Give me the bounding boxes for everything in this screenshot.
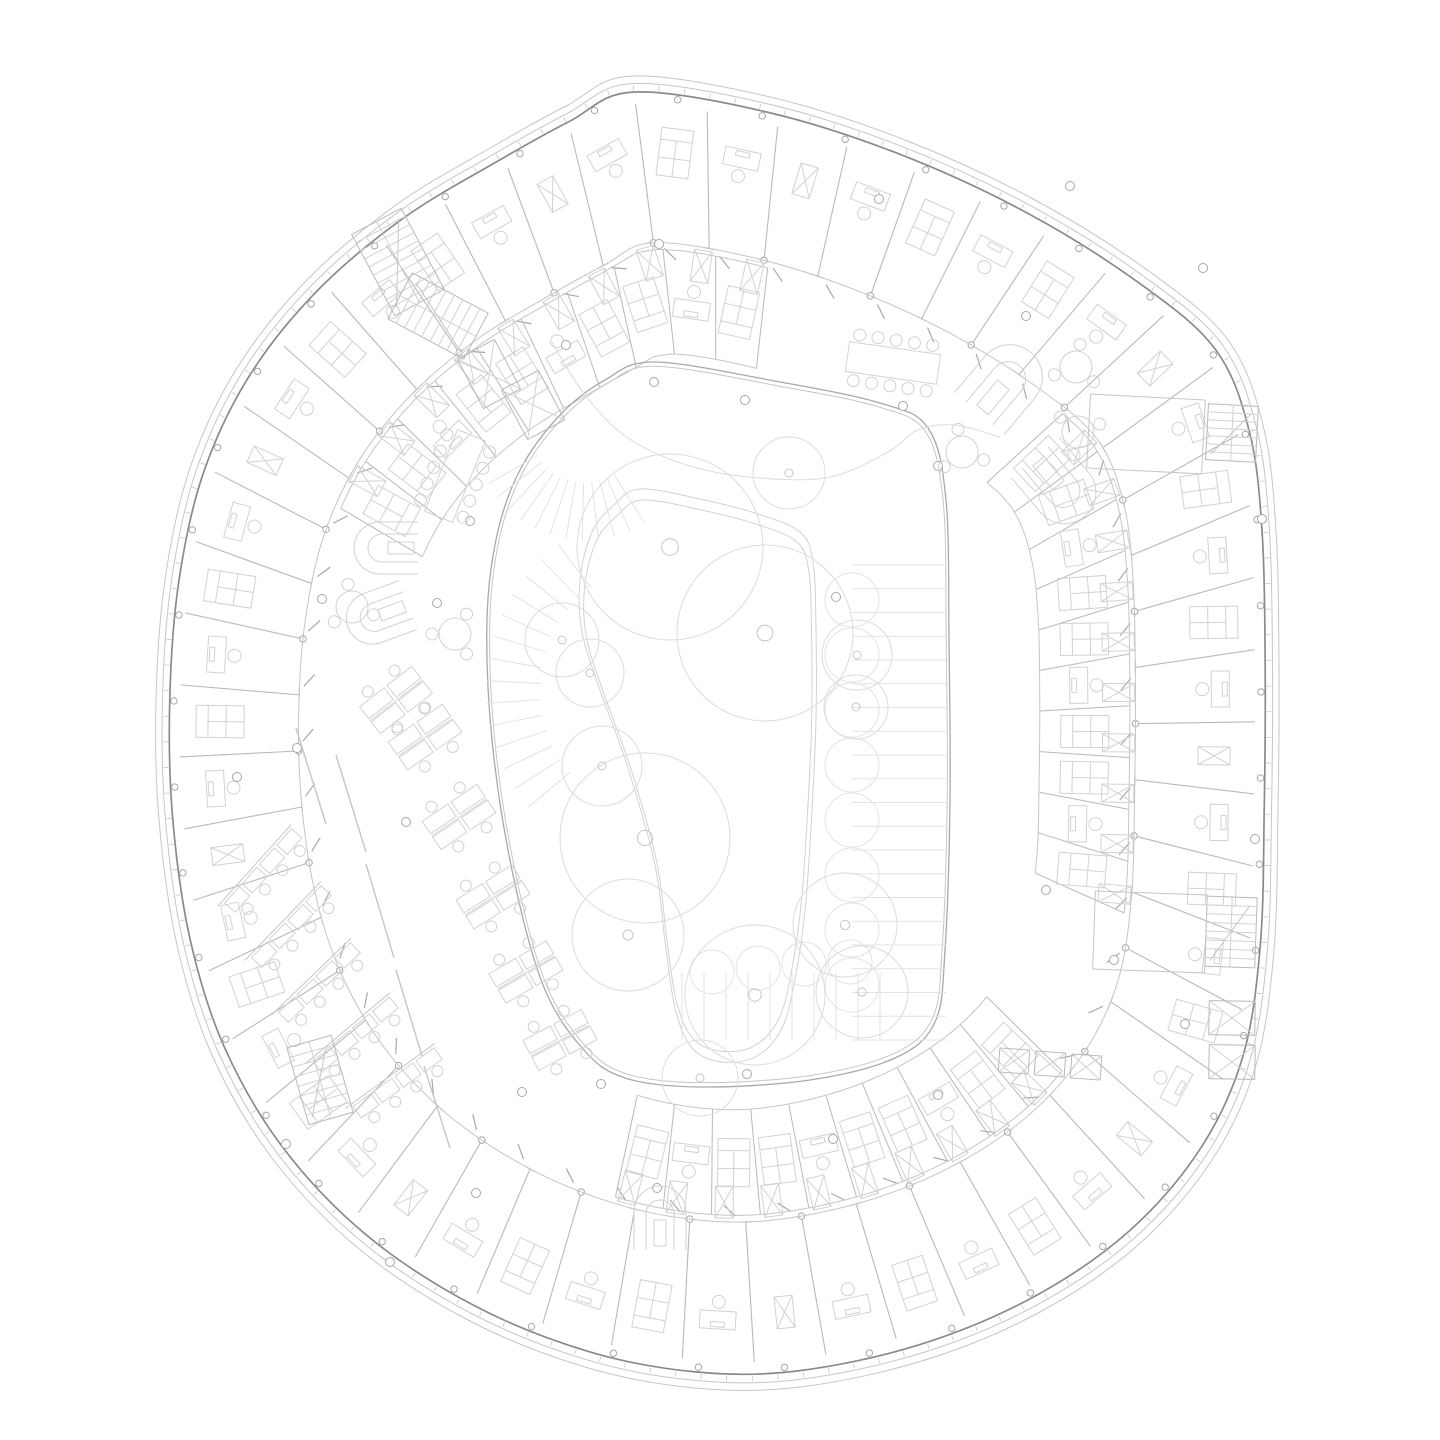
room-furniture <box>1063 1161 1112 1210</box>
room-furniture <box>338 1128 387 1177</box>
mullion-tick <box>828 1368 829 1373</box>
band-partition <box>1040 752 1130 758</box>
desk <box>832 1294 871 1319</box>
privacy-screen <box>366 864 394 958</box>
bed-line <box>849 1140 879 1150</box>
u-sofa-inner <box>966 355 1033 425</box>
mullion-tick <box>434 1287 437 1291</box>
mullion-tick <box>1147 1217 1150 1221</box>
tree-trunk <box>662 539 679 556</box>
mullion-tick <box>903 1351 904 1356</box>
door-tick <box>317 567 330 577</box>
mullion-tick <box>192 487 197 488</box>
chair <box>840 1281 855 1296</box>
band-partition <box>1036 550 1125 589</box>
privacy-screen <box>336 755 366 852</box>
band-furniture <box>388 444 446 499</box>
deck-stripe <box>494 636 546 652</box>
chair <box>492 229 510 247</box>
chair <box>976 258 994 276</box>
chair <box>409 1079 424 1094</box>
courtyard-edge <box>487 362 950 1087</box>
mullion-tick <box>200 463 205 465</box>
mullion-tick <box>252 1110 256 1113</box>
desk <box>1181 403 1210 443</box>
mullion-tick <box>281 1152 285 1155</box>
facade-line <box>162 83 1273 1383</box>
chair <box>360 684 375 699</box>
chair <box>458 645 475 662</box>
mullion-tick <box>834 124 836 129</box>
partition-wall <box>184 807 302 829</box>
band-inner-wall <box>987 483 1040 874</box>
column-dot <box>1022 312 1031 321</box>
bench-desk <box>374 1078 400 1102</box>
mullion-tick <box>1172 302 1175 306</box>
chair <box>240 901 256 917</box>
band-wardrobe <box>588 268 619 305</box>
mullion-tick <box>176 563 181 564</box>
chair <box>815 1155 831 1171</box>
partition-wall <box>358 1106 437 1213</box>
band-inner-wall <box>422 354 756 557</box>
mullion-tick <box>297 1172 301 1175</box>
monitor <box>684 1146 699 1153</box>
band-partition <box>826 1095 857 1197</box>
deck-stripe <box>508 468 547 510</box>
mullion-tick <box>624 1363 625 1368</box>
chair <box>687 285 702 300</box>
room-furniture <box>952 1234 999 1280</box>
mullion-tick <box>176 895 181 896</box>
room-furniture <box>699 1294 737 1330</box>
elevator <box>501 370 564 439</box>
mullion-tick <box>198 994 203 995</box>
column-dot <box>1258 515 1267 524</box>
mullion-tick <box>1088 243 1091 247</box>
mullion-tick <box>185 945 190 946</box>
chair <box>275 862 291 878</box>
desk-cluster <box>483 930 570 1014</box>
privacy-screen <box>296 728 326 824</box>
room-furniture <box>829 1279 871 1319</box>
elevator <box>1209 1045 1256 1080</box>
chair <box>889 333 903 347</box>
desk <box>433 420 471 458</box>
walkway-path <box>579 489 816 1063</box>
chair <box>432 443 448 459</box>
room-furniture <box>289 1075 347 1129</box>
mullion-tick <box>999 1316 1001 1321</box>
bed-line <box>913 226 942 239</box>
room-furniture <box>247 446 284 476</box>
column-dot <box>829 1135 838 1144</box>
courtyard-walkway <box>579 489 816 1063</box>
desk-cluster <box>415 774 503 860</box>
room-furniture <box>1009 1198 1062 1256</box>
tree-trunk <box>840 920 849 929</box>
deck-scallop <box>825 848 879 902</box>
band-partition <box>615 1095 637 1197</box>
room-furniture <box>1146 1059 1193 1107</box>
monitor <box>735 150 750 158</box>
monitor <box>1221 816 1226 830</box>
facade-column <box>695 1364 701 1370</box>
chair <box>312 994 328 1010</box>
tree-canopy <box>822 620 892 690</box>
bench-row <box>346 1044 452 1133</box>
chair <box>246 519 262 535</box>
deck-bands <box>486 456 946 1041</box>
band-furniture <box>758 1134 796 1186</box>
facade-column <box>759 113 765 119</box>
chair <box>228 649 242 663</box>
desk <box>850 182 890 212</box>
tree-trunk <box>623 930 633 940</box>
facade-column <box>866 1350 872 1356</box>
mullion-tick <box>186 512 191 513</box>
band-furniture <box>1057 852 1107 888</box>
facade-column <box>1257 775 1263 781</box>
bed-line <box>1066 485 1077 515</box>
chair <box>1089 817 1102 830</box>
band-partition <box>756 268 767 369</box>
table-top <box>845 342 940 385</box>
mullion-tick <box>210 439 215 441</box>
tree-trunk <box>757 625 773 641</box>
band-furniture <box>718 1138 750 1186</box>
deck-stripe <box>521 473 554 520</box>
monitor <box>1175 1081 1186 1096</box>
band-wardrobe <box>1061 430 1097 465</box>
room-furniture <box>203 569 255 608</box>
partition-wall <box>1135 780 1254 794</box>
door-tick <box>518 1144 524 1159</box>
bed-line <box>920 210 949 223</box>
mullion-tick <box>976 1326 978 1331</box>
facade-column <box>528 1323 534 1329</box>
room-furniture <box>1187 872 1236 906</box>
meeting-table <box>843 328 942 398</box>
chair <box>462 493 478 509</box>
bench-desk <box>372 997 398 1022</box>
bed-line <box>257 967 267 997</box>
round-table <box>424 597 495 668</box>
desk <box>1211 671 1229 707</box>
mullion-tick <box>952 1336 954 1341</box>
partition-wall <box>185 613 303 639</box>
bench-desk <box>335 943 361 968</box>
desk <box>1160 1066 1193 1106</box>
chair <box>416 701 431 716</box>
facade-column <box>451 1286 457 1292</box>
mullion-tick <box>367 238 370 242</box>
chair <box>424 626 441 643</box>
room-furniture <box>537 176 568 213</box>
mullion-tick <box>550 1341 552 1346</box>
room-furniture <box>719 146 761 186</box>
mullion-tick <box>1128 1235 1131 1239</box>
chair <box>1170 420 1187 437</box>
mullion-tick <box>191 970 196 971</box>
band-furniture <box>1068 806 1102 843</box>
screens <box>296 728 450 1148</box>
column-dot <box>318 595 327 604</box>
mullion-tick <box>1066 1280 1069 1284</box>
mullion-tick <box>172 869 177 870</box>
column-dot <box>293 744 302 753</box>
mullion-tick <box>207 1019 212 1021</box>
band-furniture <box>918 1082 966 1129</box>
mullion-tick <box>878 1358 879 1363</box>
deck-scallop <box>825 958 879 1012</box>
monitor <box>449 436 462 449</box>
mullion-tick <box>457 1299 459 1303</box>
chair <box>865 376 879 390</box>
tree-canopy <box>525 603 599 677</box>
chair <box>331 976 347 992</box>
partition-wall <box>1064 316 1163 408</box>
door-tick <box>1088 1006 1103 1013</box>
room-furniture <box>587 139 635 186</box>
floor-plan-drawing <box>0 0 1440 1440</box>
room-furniture <box>1078 304 1127 352</box>
column-dot <box>472 1189 481 1198</box>
deck-stripe <box>488 456 537 485</box>
bed-line <box>505 362 532 379</box>
partition-wall <box>196 542 311 584</box>
band-wardrobe <box>806 1175 831 1210</box>
mullion-tick <box>172 588 177 589</box>
bed-line <box>1090 762 1091 794</box>
mullion-tick <box>1088 1266 1091 1270</box>
bench-desk <box>333 1031 359 1056</box>
desk <box>672 298 710 321</box>
mullion-tick <box>1209 1137 1213 1140</box>
mullion-tick <box>232 392 236 394</box>
mullion-tick <box>1259 481 1264 482</box>
facade-column <box>949 1325 955 1331</box>
facade-column <box>1027 1290 1033 1296</box>
facade-column <box>1242 431 1248 437</box>
facade-column <box>591 107 597 113</box>
wardrobe-x <box>537 176 568 213</box>
monitor <box>810 1137 825 1145</box>
cluster-divider <box>398 718 452 756</box>
mullion-tick <box>853 1363 854 1368</box>
deck-stripe <box>513 595 559 623</box>
chair <box>368 609 380 621</box>
facade-column <box>923 167 929 173</box>
monitor <box>1072 678 1077 692</box>
floor-plan-page <box>0 0 1440 1440</box>
bed-line <box>897 1272 927 1282</box>
facade-column <box>171 698 177 704</box>
monitor <box>1219 548 1225 562</box>
elevator-x <box>501 370 564 439</box>
monitor <box>1222 682 1227 696</box>
tree-trunk <box>749 989 762 1002</box>
mullion-tick <box>292 309 296 312</box>
chair <box>1188 947 1202 961</box>
mullion-tick <box>1248 1043 1253 1044</box>
partition-wall <box>446 204 506 320</box>
chair <box>883 379 897 393</box>
monitor <box>347 1154 360 1168</box>
chair <box>730 169 745 184</box>
column-dot <box>875 195 884 204</box>
u-sofa-table <box>977 380 1009 415</box>
band-partition <box>341 508 423 556</box>
mullion-tick <box>408 207 411 211</box>
partition-wall <box>818 147 847 276</box>
band-wardrobe <box>690 249 712 283</box>
room-furniture <box>394 1180 428 1216</box>
mullion-tick <box>220 415 224 417</box>
deck-stripe <box>495 731 546 748</box>
band-partition <box>987 414 1062 483</box>
column-dot <box>741 396 750 405</box>
band-furniture <box>1060 623 1109 656</box>
band-partition <box>987 997 1062 1071</box>
chair <box>847 374 861 388</box>
band-wardrobe <box>715 1186 733 1218</box>
desk <box>1210 804 1228 840</box>
room-furniture <box>262 1021 308 1068</box>
mullion-tick <box>541 129 543 133</box>
monitor <box>282 389 294 403</box>
u-sofa-inner <box>356 592 413 635</box>
facade-column <box>1001 203 1007 209</box>
deck-stripe <box>558 545 590 588</box>
facade-column <box>223 1036 229 1042</box>
band-partition <box>1015 451 1098 512</box>
partition-wall <box>611 1209 634 1345</box>
partition-wall <box>764 127 778 261</box>
deck-stripe <box>497 462 542 497</box>
chair <box>871 331 885 345</box>
mullion-tick <box>452 180 454 184</box>
bed-line <box>1018 1213 1045 1230</box>
band-partition <box>712 1109 713 1214</box>
door-tick <box>831 1193 845 1200</box>
room-furniture <box>206 636 242 674</box>
mullion-tick <box>1022 1305 1024 1309</box>
door-tick <box>312 838 320 852</box>
door-tick <box>396 1038 397 1054</box>
chair <box>1082 538 1097 553</box>
column-dot <box>386 1258 395 1267</box>
band-partition <box>397 419 466 487</box>
bench-row <box>218 824 314 925</box>
column-dot <box>743 1070 752 1079</box>
mullion-tick <box>351 1227 354 1231</box>
bed-line <box>1090 623 1091 655</box>
monitor <box>684 311 699 318</box>
mullion-tick <box>760 104 761 109</box>
deck-stripe <box>502 615 551 637</box>
mullion-tick <box>1181 1179 1185 1182</box>
room-furniture <box>196 705 244 738</box>
facade-column <box>842 136 848 142</box>
column-dot <box>562 341 571 350</box>
room-furniture <box>501 1238 550 1295</box>
mullion-tick <box>309 290 313 293</box>
partition-wall <box>856 1204 896 1339</box>
room-furniture <box>965 235 1012 281</box>
bed-line <box>513 1254 542 1267</box>
bed-line <box>958 1060 983 1079</box>
band-partition <box>1038 833 1128 862</box>
partition-wall <box>1135 722 1254 724</box>
band-partition <box>862 1083 903 1181</box>
room-furniture <box>443 1210 491 1257</box>
deck-scallop <box>825 903 879 957</box>
tree-trunk <box>637 830 652 845</box>
room-furniture <box>566 1267 611 1310</box>
bed-line <box>1205 873 1206 905</box>
mullion-tick <box>976 181 978 186</box>
facade-column <box>180 870 186 876</box>
scatter-dots <box>233 182 1267 1267</box>
mullion-tick <box>1222 1115 1226 1117</box>
mullion-tick <box>180 537 185 538</box>
mullion-tick <box>999 192 1001 196</box>
facade-column <box>1256 861 1262 867</box>
band-wardrobe <box>379 422 415 456</box>
mullion-tick <box>526 1332 528 1337</box>
bed-line <box>587 315 615 330</box>
mullion-tick <box>245 370 249 373</box>
bench-desk <box>252 942 277 968</box>
mullion-tick <box>1152 286 1155 290</box>
mullion-tick <box>1196 1159 1200 1162</box>
facade-column <box>379 1238 385 1244</box>
mullion-tick <box>608 90 610 95</box>
courtyard-boundary <box>487 362 950 1087</box>
desk-cluster <box>381 694 469 780</box>
bench-desk <box>297 979 323 1004</box>
room-furniture <box>792 163 818 199</box>
monitor <box>209 647 215 661</box>
mullion-tick <box>585 104 588 108</box>
chair <box>387 1013 402 1028</box>
facade-column <box>308 301 314 307</box>
room-furniture <box>906 199 955 256</box>
column-dot <box>282 1140 291 1149</box>
cluster-divider <box>465 880 521 915</box>
door-tick <box>308 620 320 631</box>
monitor <box>1214 949 1221 963</box>
mullion-tick <box>953 170 955 175</box>
mullion-tick <box>929 160 931 165</box>
facade-column <box>1076 245 1082 251</box>
bench-screen <box>271 939 350 1015</box>
privacy-screen <box>396 970 422 1056</box>
mullion-tick <box>503 1322 505 1327</box>
chair <box>583 1270 599 1286</box>
room-furniture <box>1168 999 1223 1043</box>
column-dot <box>402 818 411 827</box>
table-top <box>1055 346 1096 387</box>
deck-stripe <box>582 483 583 540</box>
staircase <box>388 273 488 359</box>
round-table <box>1042 403 1107 467</box>
mullion-tick <box>564 117 566 121</box>
door-tick <box>773 268 782 281</box>
mullion-tick <box>675 1372 676 1377</box>
bed-line <box>635 1136 666 1144</box>
